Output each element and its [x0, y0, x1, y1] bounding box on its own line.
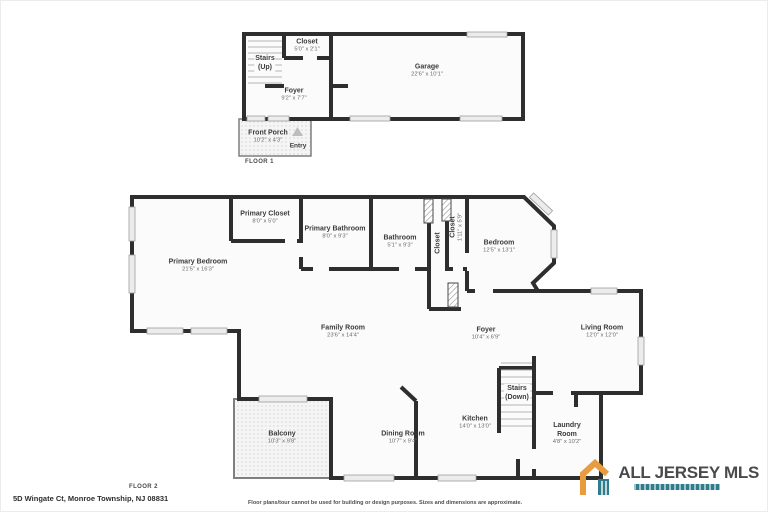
room-label-living-room: Living Room 12'0" x 12'0"	[581, 324, 623, 341]
room-label-foyer-f1: Foyer 9'2" x 7'7"	[281, 87, 306, 104]
room-label-primary-bedroom: Primary Bedroom 21'5" x 16'3"	[169, 258, 228, 275]
room-label-front-porch: Front Porch 10'2" x 4'3"	[248, 129, 288, 146]
room-label-bathroom: Bathroom 5'1" x 9'3"	[383, 234, 416, 251]
room-label-stairs-down: Stairs (Down)	[504, 384, 530, 402]
brand-text: ALL JERSEY MLS	[618, 464, 759, 490]
all-jersey-mls-logo: ALL JERSEY MLS	[577, 457, 759, 497]
brand-tagline-bar	[634, 484, 720, 490]
room-label-closet-hall: Closet 1'11" x 5'9"	[449, 213, 466, 241]
room-label-laundry-room: Laundry Room 4'8" x 10'2"	[544, 421, 590, 447]
room-label-dining-room: Dining Room 10'7" x 9'4"	[381, 430, 425, 447]
floorplan-page: Closet 5'0" x 2'1" Stairs (Up) Garage 22…	[0, 0, 768, 512]
floor2-tag: FLOOR 2	[129, 484, 158, 490]
room-label-bedroom: Bedroom 12'5" x 13'1"	[483, 239, 515, 256]
disclaimer-text: Floor plans/tour cannot be used for buil…	[1, 500, 768, 506]
floor1-tag: FLOOR 1	[245, 159, 274, 165]
room-label-entry: Entry	[290, 134, 307, 155]
brand-house-icon	[577, 457, 613, 497]
room-label-closet-small: Closet	[433, 232, 442, 253]
brand-name: ALL JERSEY MLS	[618, 464, 759, 481]
room-label-primary-bathroom: Primary Bathroom 8'0" x 9'3"	[304, 225, 365, 242]
room-label-primary-closet: Primary Closet 8'0" x 5'0"	[240, 210, 289, 227]
room-label-family-room: Family Room 23'6" x 14'4"	[321, 324, 365, 341]
room-label-stairs-up: Stairs (Up)	[254, 54, 275, 72]
room-label-garage: Garage 22'6" x 10'1"	[411, 63, 443, 80]
room-label-closet-f1: Closet 5'0" x 2'1"	[294, 38, 319, 55]
room-label-balcony: Balcony 10'3" x 9'8"	[268, 430, 297, 447]
room-label-foyer-f2: Foyer 10'4" x 6'9"	[472, 326, 501, 343]
room-label-kitchen: Kitchen 14'0" x 13'0"	[459, 415, 491, 432]
